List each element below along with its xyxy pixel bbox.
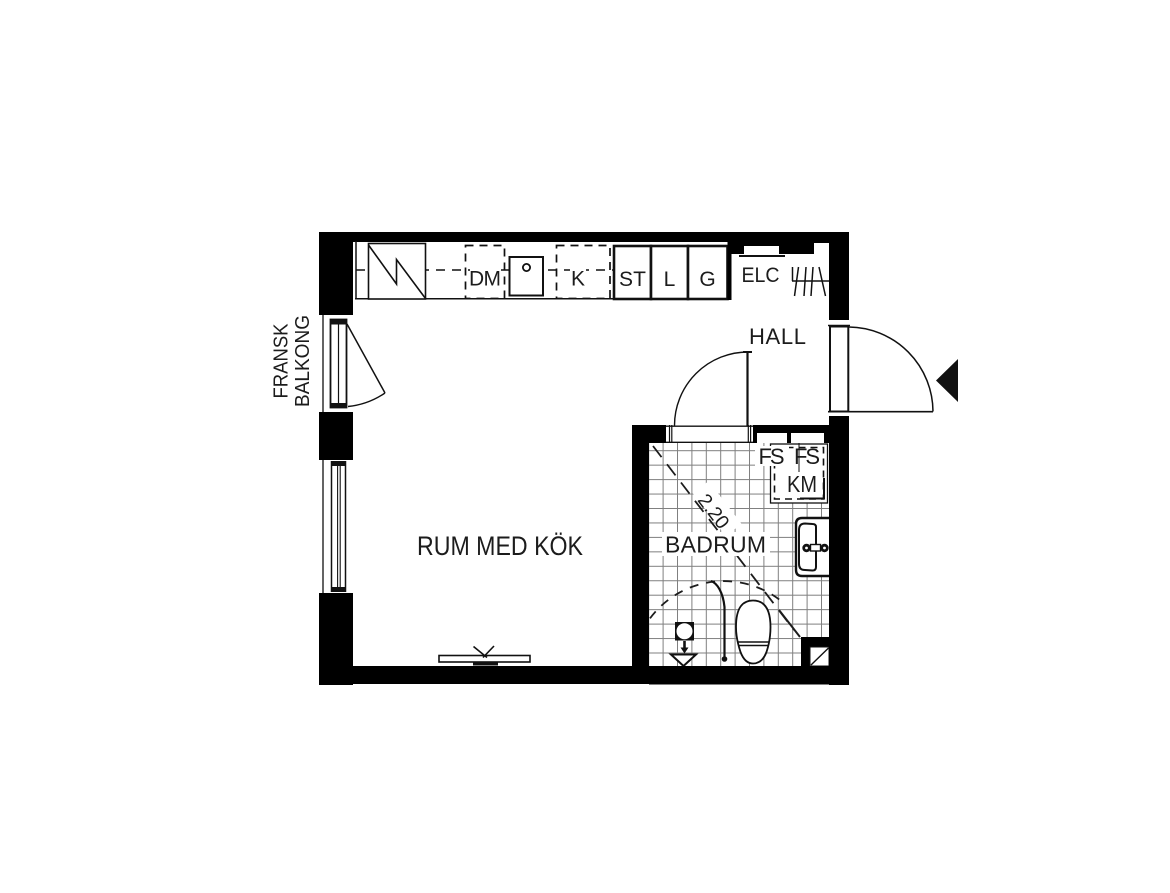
svg-text:FS: FS: [794, 444, 820, 469]
svg-text:HALL: HALL: [749, 324, 806, 349]
svg-text:ELC: ELC: [742, 264, 780, 287]
svg-text:K: K: [571, 268, 585, 291]
svg-text:ST: ST: [619, 268, 646, 291]
svg-text:KM: KM: [787, 471, 817, 497]
svg-text:G: G: [699, 268, 715, 291]
svg-text:FRANSK: FRANSK: [271, 323, 293, 399]
svg-text:FS: FS: [759, 444, 785, 469]
svg-text:BADRUM: BADRUM: [665, 532, 766, 558]
svg-text:L: L: [664, 268, 676, 291]
svg-text:RUM MED KÖK: RUM MED KÖK: [417, 531, 583, 561]
svg-text:DM: DM: [469, 268, 501, 291]
svg-text:BALKONG: BALKONG: [292, 315, 314, 407]
